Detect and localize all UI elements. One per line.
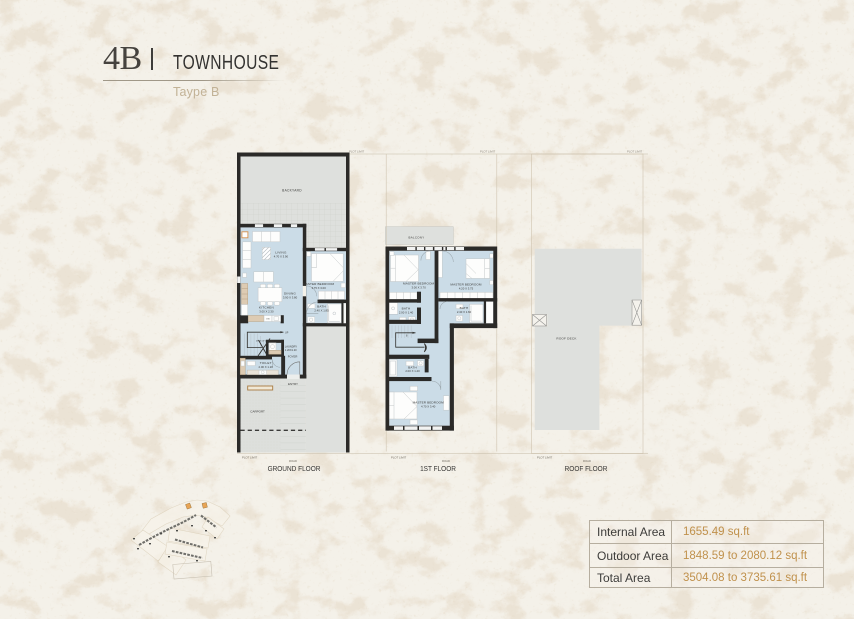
svg-text:ENTRY: ENTRY [288,382,298,386]
svg-text:CARPORT: CARPORT [250,410,265,414]
svg-text:2.00 X 1.20: 2.00 X 1.20 [259,365,274,369]
svg-text:PLOT LIMIT: PLOT LIMIT [627,150,642,154]
svg-text:1.20X1.20: 1.20X1.20 [285,348,297,352]
svg-text:3.90 X 3.80: 3.90 X 3.80 [283,296,298,300]
svg-text:ROOF DECK: ROOF DECK [556,337,577,341]
svg-text:DW: DW [266,319,269,321]
svg-text:3.00 X 2.30: 3.00 X 2.30 [259,309,274,313]
svg-text:PLOT LIMIT: PLOT LIMIT [242,456,257,460]
svg-text:ROAD: ROAD [289,459,297,463]
svg-text:05 06 07 08 09 10: 05 06 07 08 09 10 [256,340,274,342]
svg-text:2.00 X 1.40: 2.00 X 1.40 [399,310,414,314]
svg-text:ROAD: ROAD [442,459,450,463]
svg-text:BACKYARD: BACKYARD [282,189,302,193]
svg-text:4.70 X 3.40: 4.70 X 3.40 [421,405,436,409]
svg-text:FOYER: FOYER [288,355,298,359]
svg-text:PLOT LIMIT: PLOT LIMIT [537,456,552,460]
svg-text:UP: UP [285,332,289,335]
svg-text:PLOT LIMIT: PLOT LIMIT [391,456,406,460]
svg-text:PLOT LIMIT: PLOT LIMIT [349,150,364,154]
svg-text:ROAD: ROAD [583,459,591,463]
svg-text:2.40 X 1.60: 2.40 X 1.60 [457,310,472,314]
svg-text:2.40 X 1.85: 2.40 X 1.85 [314,308,329,312]
svg-text:PLOT LIMIT: PLOT LIMIT [480,150,495,154]
svg-text:3.00 X 3.70: 3.00 X 3.70 [411,286,426,290]
svg-text:4.70 X 3.90: 4.70 X 3.90 [274,254,289,258]
svg-text:3.75 X 3.00: 3.75 X 3.00 [311,286,326,290]
svg-text:BALCONY: BALCONY [409,236,425,240]
svg-text:4.20 X 3.75: 4.20 X 3.75 [459,287,474,291]
svg-text:2.00 X 1.40: 2.00 X 1.40 [405,369,420,373]
